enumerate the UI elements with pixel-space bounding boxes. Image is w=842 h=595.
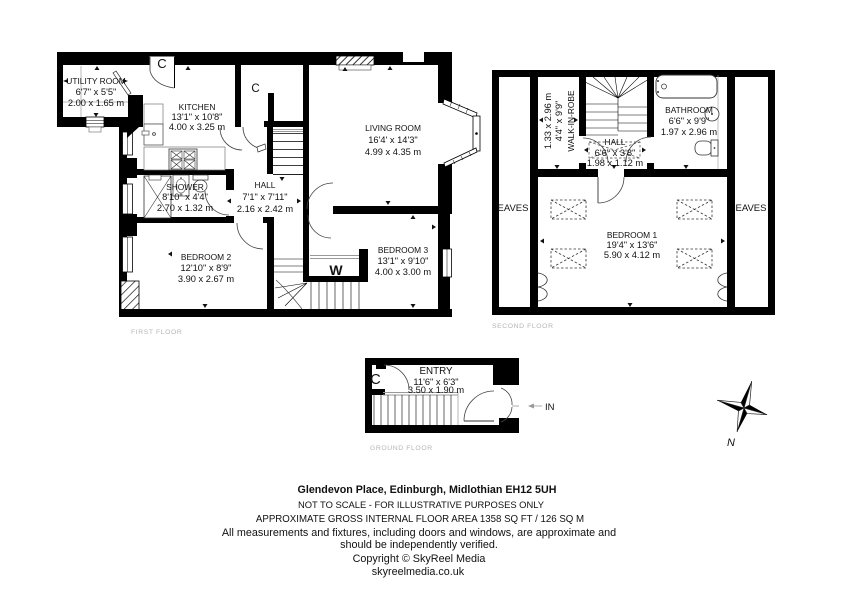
svg-text:3.90 x 2.67 m: 3.90 x 2.67 m xyxy=(178,274,235,284)
svg-text:ENTRY: ENTRY xyxy=(419,366,452,377)
svg-text:All measurements and fixtures,: All measurements and fixtures, including… xyxy=(222,527,616,539)
svg-text:KITCHEN: KITCHEN xyxy=(179,102,216,112)
svg-text:FIRST FLOOR: FIRST FLOOR xyxy=(131,329,182,336)
svg-text:BEDROOM 3: BEDROOM 3 xyxy=(378,245,429,255)
svg-text:APPROXIMATE GROSS INTERNAL FLO: APPROXIMATE GROSS INTERNAL FLOOR AREA 13… xyxy=(256,514,584,525)
svg-text:19'4" x 13'6": 19'4" x 13'6" xyxy=(607,240,658,250)
svg-text:6'6" x 9'9": 6'6" x 9'9" xyxy=(669,116,710,126)
svg-text:13'1" x 9'10": 13'1" x 9'10" xyxy=(378,256,429,266)
svg-text:6'6" x 3'8": 6'6" x 3'8" xyxy=(595,148,636,158)
svg-text:2.16 x 2.42 m: 2.16 x 2.42 m xyxy=(237,204,294,214)
svg-text:Copyright © SkyReel Media: Copyright © SkyReel Media xyxy=(353,553,486,565)
svg-text:2.00 x 1.65 m: 2.00 x 1.65 m xyxy=(68,98,125,108)
svg-text:16'4' x 14'3": 16'4' x 14'3" xyxy=(368,135,417,145)
svg-text:1.33 x 2.96 m: 1.33 x 2.96 m xyxy=(543,93,553,150)
svg-text:4.99 x 4.35 m: 4.99 x 4.35 m xyxy=(365,147,422,157)
svg-text:5.90 x 4.12 m: 5.90 x 4.12 m xyxy=(604,250,661,260)
svg-text:IN: IN xyxy=(545,402,555,413)
svg-text:UTILITY ROOM: UTILITY ROOM xyxy=(66,76,125,86)
svg-text:SECOND FLOOR: SECOND FLOOR xyxy=(492,323,554,330)
svg-text:C: C xyxy=(251,83,259,95)
svg-text:skyreelmedia.co.uk: skyreelmedia.co.uk xyxy=(372,566,465,578)
svg-text:EAVES: EAVES xyxy=(736,203,767,214)
svg-text:4.00 x 3.25 m: 4.00 x 3.25 m xyxy=(169,122,226,132)
svg-text:BEDROOM 2: BEDROOM 2 xyxy=(181,252,232,262)
svg-text:4'4" x 9'9": 4'4" x 9'9" xyxy=(554,101,564,142)
svg-text:N: N xyxy=(727,437,735,449)
svg-text:4.00 x 3.00 m: 4.00 x 3.00 m xyxy=(375,267,432,277)
svg-text:3.50 x 1.90 m: 3.50 x 1.90 m xyxy=(408,385,465,395)
svg-text:LIVING ROOM: LIVING ROOM xyxy=(365,123,421,133)
svg-text:GROUND FLOOR: GROUND FLOOR xyxy=(370,445,433,452)
svg-text:SHOWER: SHOWER xyxy=(166,182,204,192)
svg-text:HALL: HALL xyxy=(605,137,626,147)
svg-text:NOT TO SCALE - FOR ILLUSTRATIV: NOT TO SCALE - FOR ILLUSTRATIVE PURPOSES… xyxy=(298,499,545,510)
svg-text:6'7" x 5'5": 6'7" x 5'5" xyxy=(76,87,117,97)
svg-text:EAVES: EAVES xyxy=(498,203,529,214)
svg-text:C: C xyxy=(370,372,380,388)
svg-text:12'10" x 8'9": 12'10" x 8'9" xyxy=(181,263,232,273)
svg-text:C: C xyxy=(157,56,166,71)
svg-text:7'1" x 7'11": 7'1" x 7'11" xyxy=(242,192,287,202)
svg-text:BEDROOM 1: BEDROOM 1 xyxy=(607,230,658,240)
svg-text:HALL: HALL xyxy=(255,180,276,190)
svg-text:1.97 x 2.96 m: 1.97 x 2.96 m xyxy=(661,127,718,137)
svg-text:Glendevon Place, Edinburgh, Mi: Glendevon Place, Edinburgh, Midlothian E… xyxy=(298,484,557,496)
svg-text:W: W xyxy=(329,262,343,278)
svg-text:2.70 x 1.32 m: 2.70 x 1.32 m xyxy=(157,203,214,213)
svg-text:should be independently verifi: should be independently verified. xyxy=(340,539,498,551)
svg-text:BATHROOM: BATHROOM xyxy=(665,105,713,115)
svg-text:13'1" x 10'8": 13'1" x 10'8" xyxy=(172,112,223,122)
svg-text:8'10" x 4'4": 8'10" x 4'4" xyxy=(162,192,208,202)
